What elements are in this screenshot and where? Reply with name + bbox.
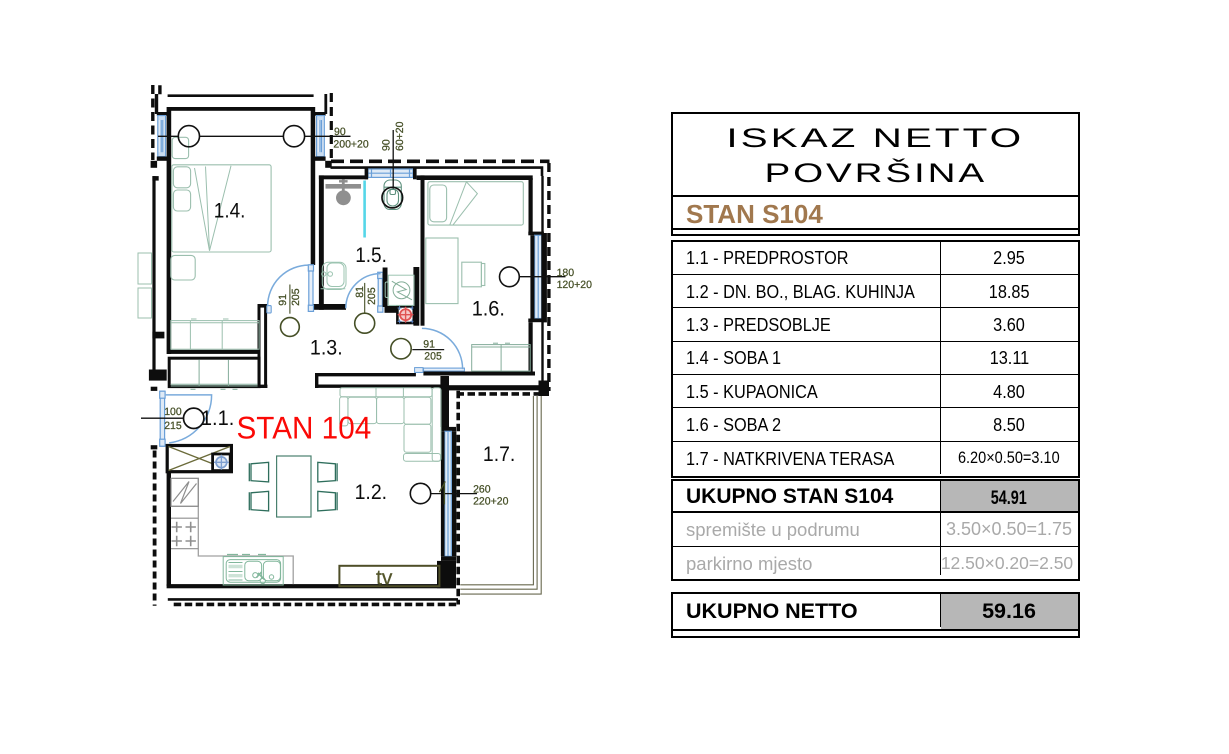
svg-text:STAN 104: STAN 104 — [237, 409, 372, 445]
svg-text:260: 260 — [473, 483, 491, 495]
svg-text:215: 215 — [164, 420, 182, 432]
svg-text:1.6.: 1.6. — [472, 298, 505, 321]
svg-text:205: 205 — [424, 351, 442, 363]
svg-text:1.4.: 1.4. — [214, 200, 246, 223]
svg-text:220+20: 220+20 — [473, 496, 508, 508]
svg-text:90: 90 — [334, 126, 346, 138]
svg-text:1.5.: 1.5. — [355, 244, 387, 267]
svg-text:1.1.: 1.1. — [201, 407, 234, 430]
svg-text:100: 100 — [164, 406, 182, 418]
svg-text:tv: tv — [376, 566, 393, 589]
svg-text:1.7.: 1.7. — [483, 443, 515, 466]
svg-text:205: 205 — [290, 288, 302, 306]
svg-text:205: 205 — [366, 287, 378, 305]
svg-text:180: 180 — [557, 267, 575, 279]
svg-text:91: 91 — [277, 294, 289, 306]
svg-text:200+20: 200+20 — [333, 139, 368, 151]
svg-text:1.3.: 1.3. — [310, 337, 343, 360]
svg-text:60+20: 60+20 — [394, 121, 406, 151]
svg-text:90: 90 — [381, 139, 393, 151]
svg-text:81: 81 — [354, 286, 366, 298]
svg-text:91: 91 — [423, 338, 435, 350]
svg-text:120+20: 120+20 — [557, 279, 592, 291]
svg-text:1.2.: 1.2. — [355, 481, 388, 504]
